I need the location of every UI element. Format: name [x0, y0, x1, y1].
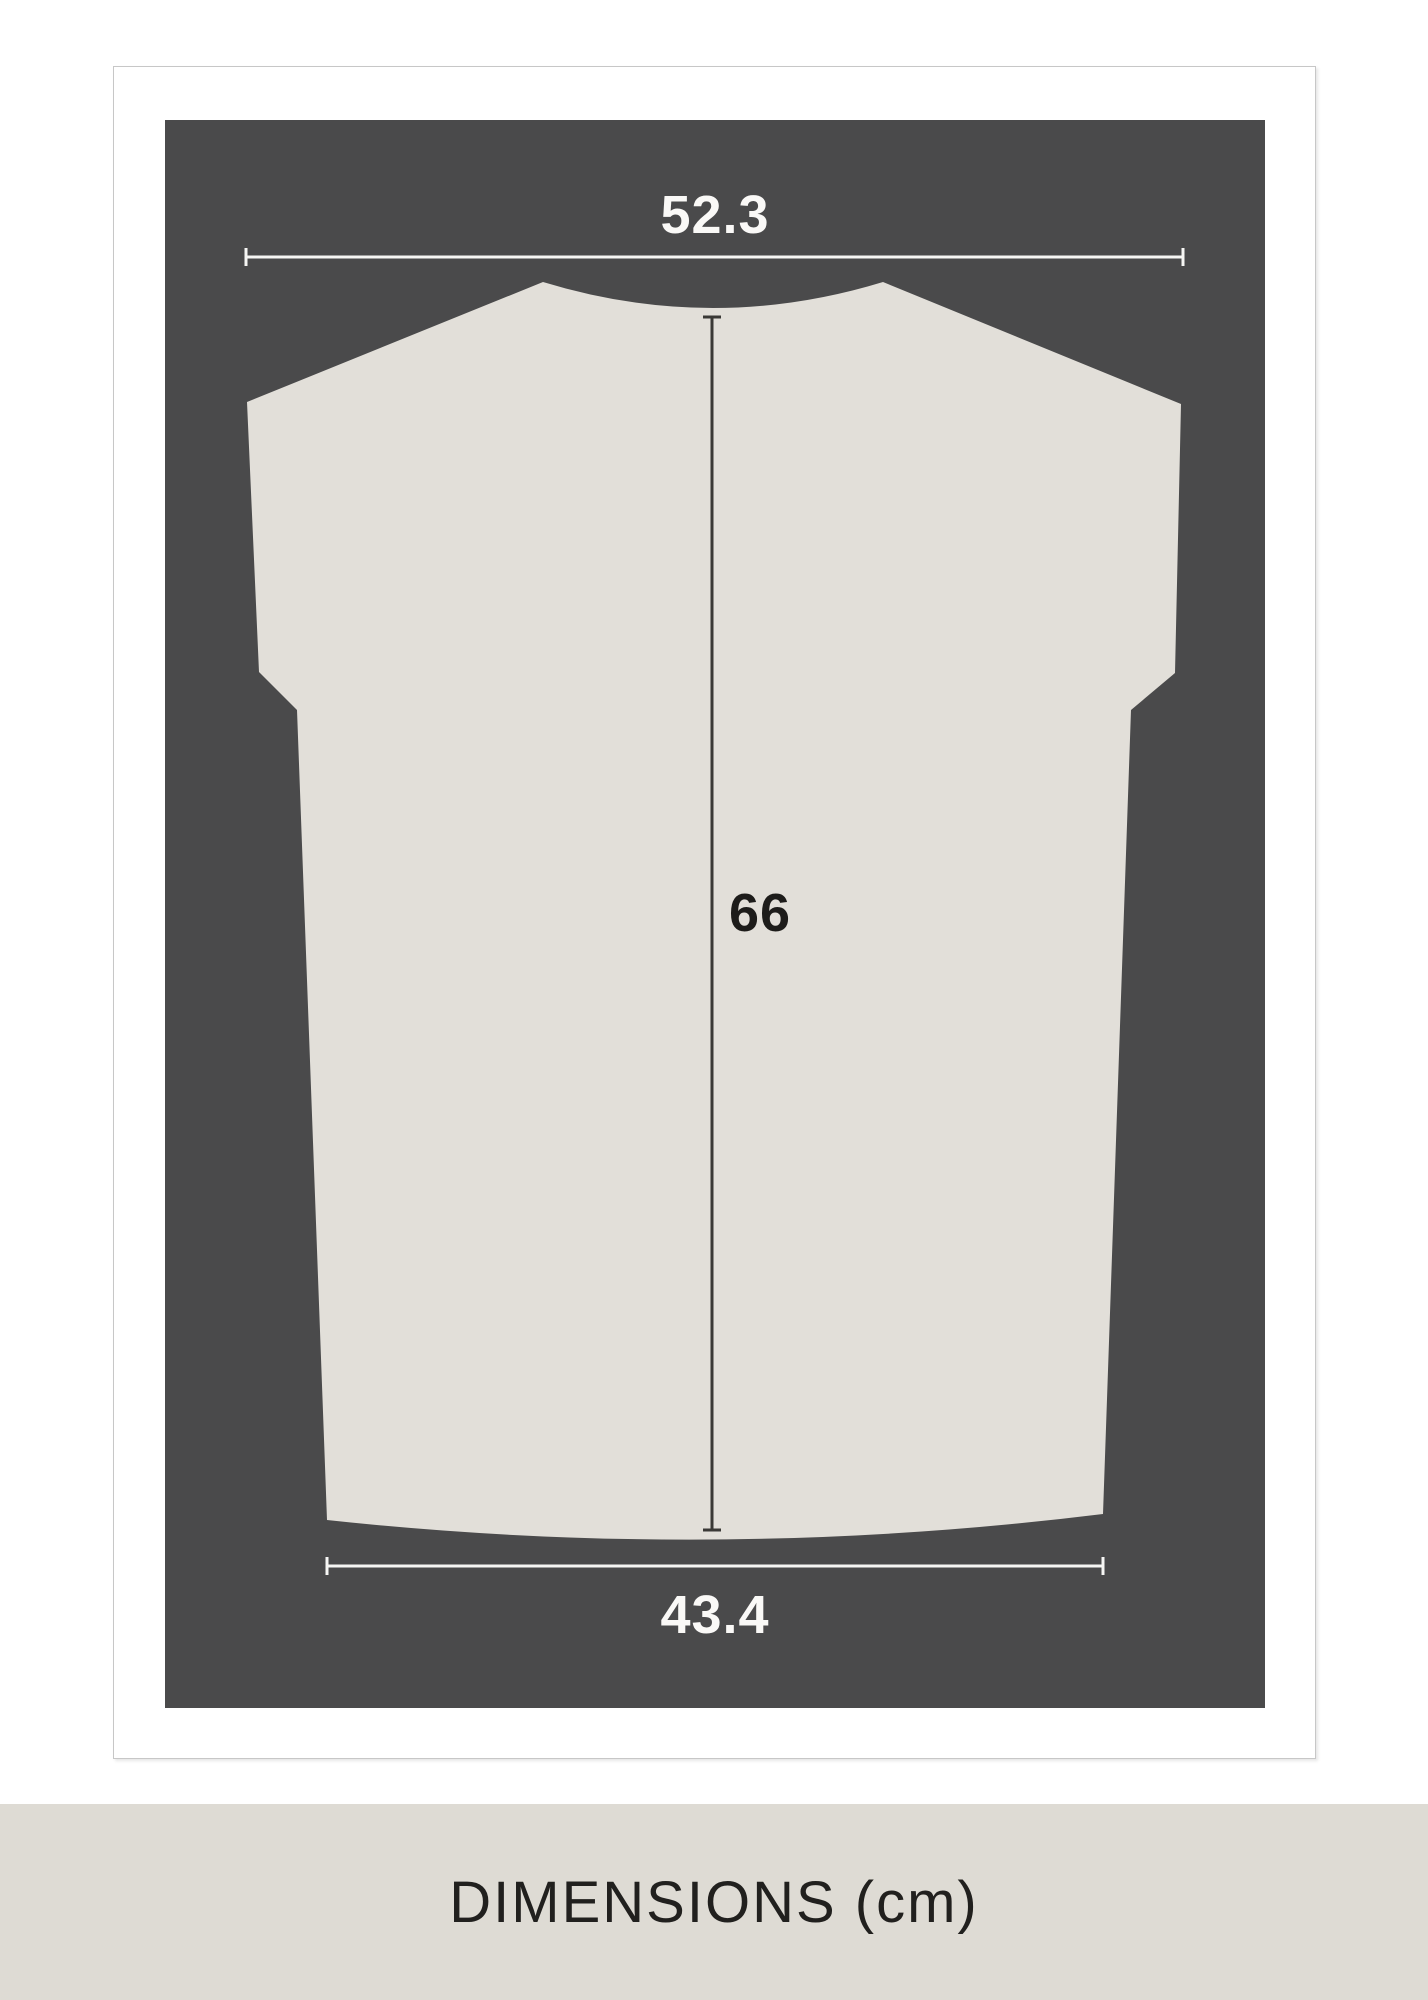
dimensions-caption: DIMENSIONS (cm) [449, 1869, 978, 1936]
t-shirt-silhouette-icon [247, 282, 1181, 1540]
footer-band: DIMENSIONS (cm) [0, 1804, 1428, 2000]
diagram-panel: 52.3 66 43.4 [165, 120, 1265, 1708]
garment-diagram [165, 120, 1265, 1708]
top-width-measure-line [246, 248, 1183, 266]
dimensions-card: 52.3 66 43.4 [113, 66, 1316, 1759]
bottom-width-value: 43.4 [165, 1588, 1265, 1642]
product-dimensions-page: 52.3 66 43.4 DIMENSIONS (cm) [0, 0, 1428, 2000]
bottom-width-measure-line [327, 1557, 1103, 1575]
length-value: 66 [729, 886, 791, 940]
top-width-value: 52.3 [165, 188, 1265, 242]
